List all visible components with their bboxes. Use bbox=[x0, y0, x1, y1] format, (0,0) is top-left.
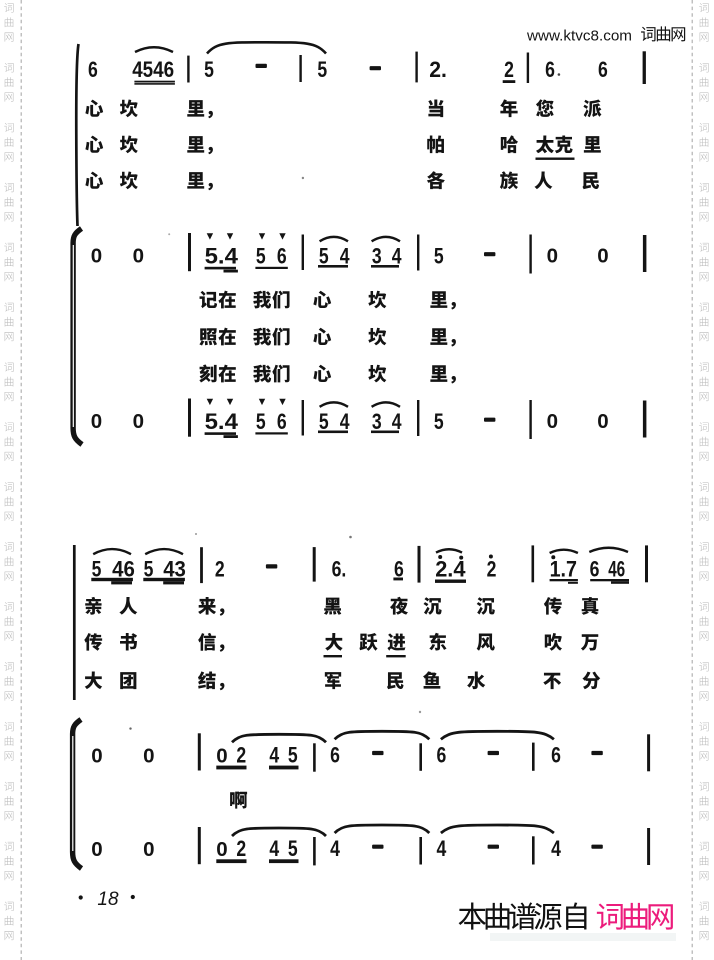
svg-text:0: 0 bbox=[597, 245, 608, 268]
svg-text:0: 0 bbox=[133, 245, 144, 268]
svg-text:0: 0 bbox=[91, 245, 102, 268]
svg-text:www.ktvc8.com: www.ktvc8.com bbox=[526, 29, 632, 45]
svg-text:5: 5 bbox=[288, 744, 298, 768]
svg-text:6: 6 bbox=[330, 744, 340, 768]
svg-text:2.: 2. bbox=[429, 57, 447, 82]
svg-text:5: 5 bbox=[204, 58, 214, 82]
svg-text:4: 4 bbox=[330, 837, 340, 861]
svg-text:2: 2 bbox=[487, 558, 497, 582]
svg-text:46: 46 bbox=[608, 557, 625, 582]
svg-text:2: 2 bbox=[236, 744, 246, 768]
svg-text:4: 4 bbox=[551, 837, 561, 861]
svg-text:5: 5 bbox=[256, 245, 266, 269]
svg-text:1.7: 1.7 bbox=[550, 557, 577, 582]
svg-text:6.: 6. bbox=[332, 557, 347, 582]
svg-text:6: 6 bbox=[598, 58, 608, 82]
svg-text:2.4: 2.4 bbox=[435, 557, 466, 582]
svg-text:0: 0 bbox=[547, 410, 558, 433]
svg-text:0: 0 bbox=[597, 410, 608, 433]
svg-text:2: 2 bbox=[236, 837, 246, 861]
svg-text:6: 6 bbox=[590, 558, 600, 582]
svg-text:6: 6 bbox=[277, 410, 287, 434]
svg-text:6: 6 bbox=[88, 58, 98, 82]
svg-text:5: 5 bbox=[288, 837, 298, 861]
svg-text:0: 0 bbox=[91, 410, 102, 433]
svg-text:4: 4 bbox=[437, 837, 447, 861]
svg-text:5.4: 5.4 bbox=[205, 409, 239, 434]
svg-text:0: 0 bbox=[143, 744, 154, 767]
svg-text:4: 4 bbox=[269, 837, 279, 861]
svg-text:0: 0 bbox=[133, 410, 144, 433]
svg-text:0: 0 bbox=[143, 838, 154, 861]
svg-text:6: 6 bbox=[545, 58, 555, 82]
svg-text:6: 6 bbox=[277, 245, 287, 269]
svg-text:6: 6 bbox=[551, 744, 561, 768]
svg-text:5: 5 bbox=[256, 410, 266, 434]
svg-text:18: 18 bbox=[97, 889, 119, 910]
svg-text:43: 43 bbox=[163, 557, 186, 582]
svg-text:0: 0 bbox=[91, 838, 102, 861]
svg-text:46: 46 bbox=[112, 557, 135, 582]
svg-text:6: 6 bbox=[437, 744, 447, 768]
svg-text:5: 5 bbox=[317, 58, 327, 82]
svg-text:5: 5 bbox=[434, 410, 444, 434]
svg-text:4546: 4546 bbox=[132, 57, 174, 82]
svg-text:2: 2 bbox=[215, 558, 225, 582]
svg-text:0: 0 bbox=[547, 245, 558, 268]
svg-text:0: 0 bbox=[91, 744, 102, 767]
svg-text:4: 4 bbox=[269, 744, 279, 768]
svg-text:2: 2 bbox=[504, 58, 514, 82]
svg-text:0: 0 bbox=[216, 744, 227, 767]
svg-text:5: 5 bbox=[434, 245, 444, 269]
svg-text:5.4: 5.4 bbox=[205, 244, 239, 269]
svg-text:0: 0 bbox=[216, 838, 227, 861]
